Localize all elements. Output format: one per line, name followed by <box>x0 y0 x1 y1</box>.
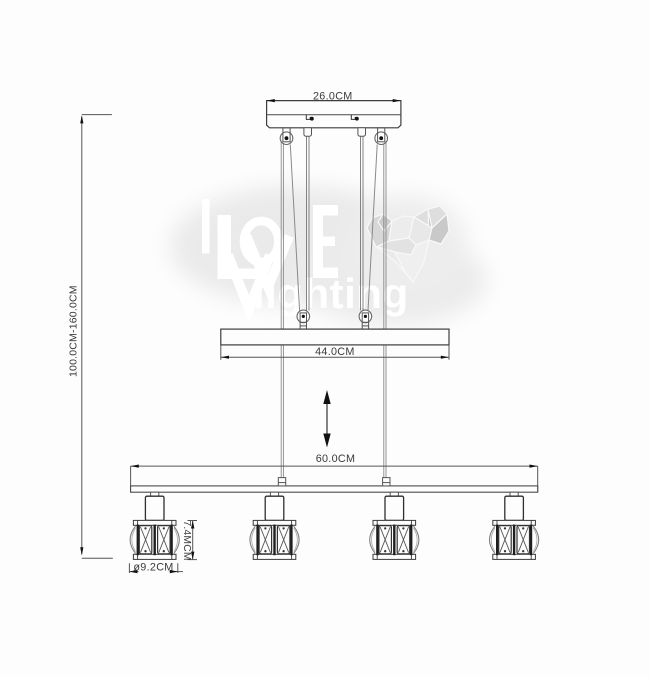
svg-text:26.0CM: 26.0CM <box>313 91 353 103</box>
svg-text:ø9.2CM: ø9.2CM <box>133 562 173 574</box>
svg-text:60.0CM: 60.0CM <box>316 453 356 465</box>
svg-text:lighting: lighting <box>253 270 409 317</box>
svg-text:100.0CM-160.0CM: 100.0CM-160.0CM <box>68 285 80 377</box>
svg-text:44.0CM: 44.0CM <box>315 346 355 358</box>
svg-text:7.4MCM: 7.4MCM <box>181 521 192 561</box>
